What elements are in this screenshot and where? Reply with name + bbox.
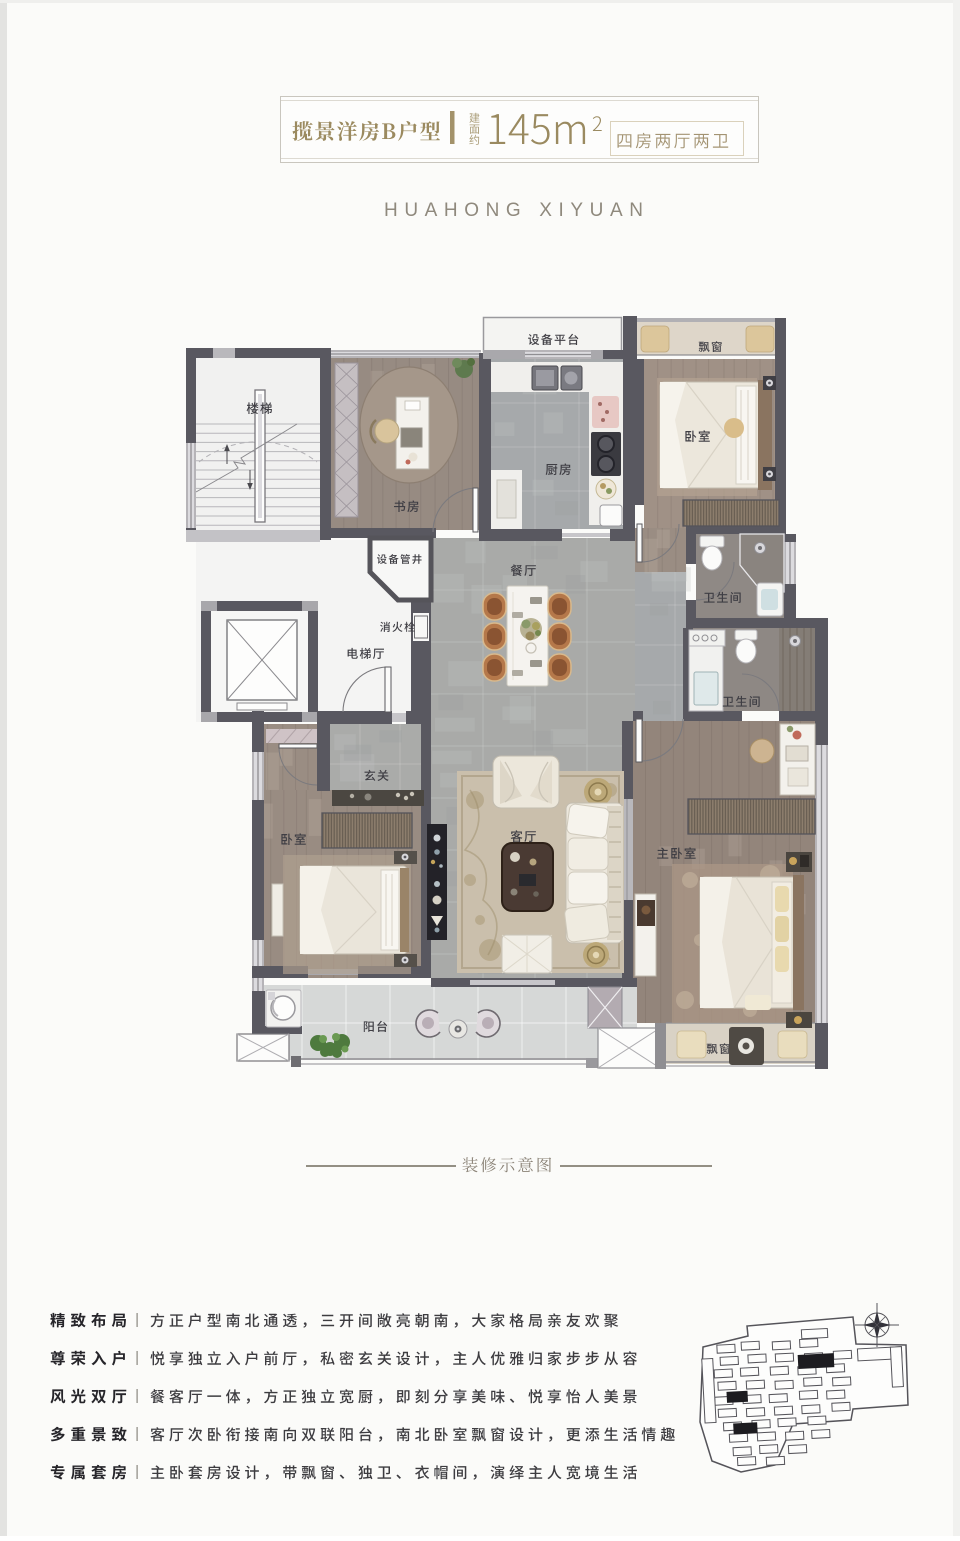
svg-text:HUAHONG XIYUAN: HUAHONG XIYUAN bbox=[384, 200, 650, 221]
